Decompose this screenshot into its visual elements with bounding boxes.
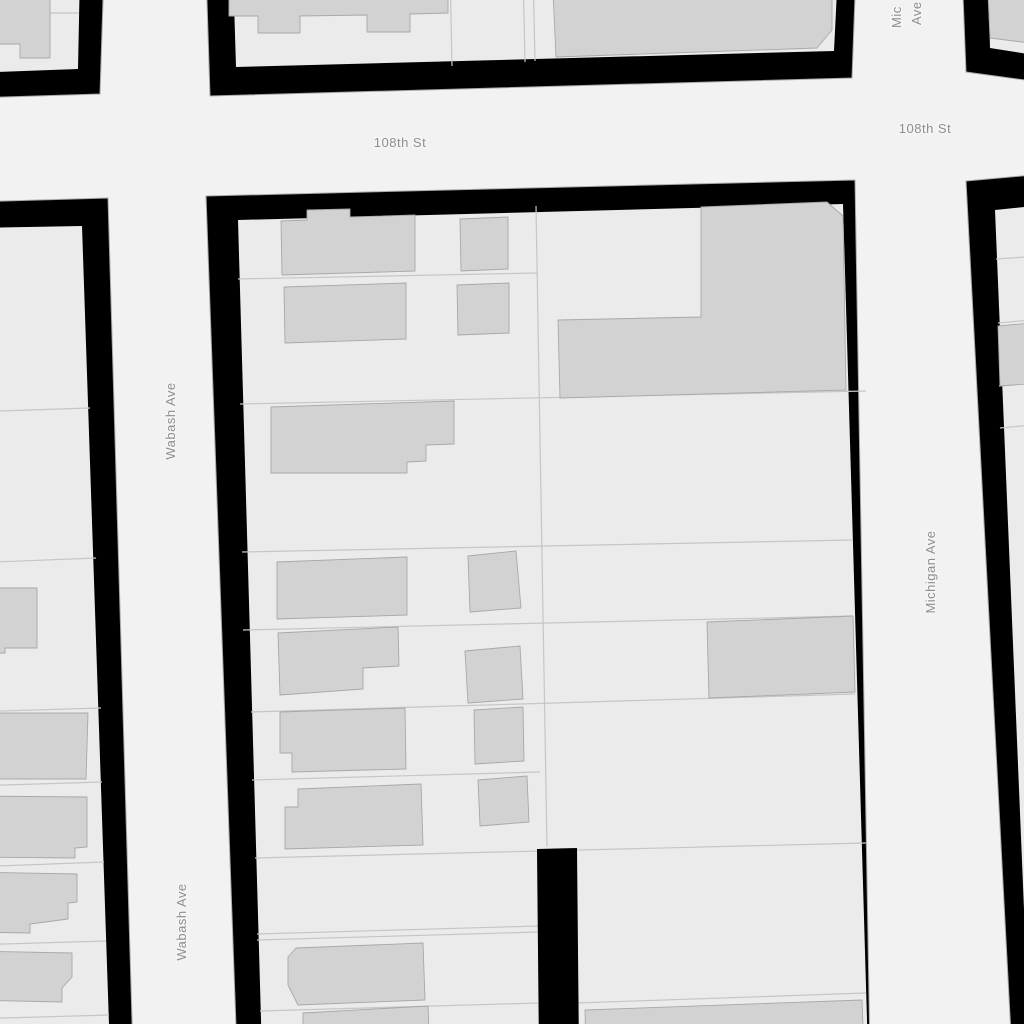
block-center-building-2 <box>284 283 406 343</box>
street-label-wabash-ave-north: Wabash Ave <box>163 382 178 459</box>
street-label-michigan-ave-top-line1: Mic <box>889 6 904 28</box>
block-center-building-8 <box>465 646 523 703</box>
block-west-building-2 <box>0 796 87 858</box>
block-center-building-6 <box>468 551 521 612</box>
block-center-building-3 <box>457 283 509 335</box>
block-center-building-13 <box>288 943 425 1005</box>
block-center-building-12 <box>478 776 529 826</box>
street-label-wabash-ave-south: Wabash Ave <box>174 883 189 960</box>
block-center-building-9 <box>280 708 406 772</box>
map-viewport: 108th St108th StWabash AveWabash AveMich… <box>0 0 1024 1024</box>
block-east-building-0 <box>998 321 1024 386</box>
street-label-michigan-ave: Michigan Ave <box>923 530 938 613</box>
block-center-building-11 <box>285 784 423 849</box>
map-svg[interactable]: 108th St108th StWabash AveWabash AveMich… <box>0 0 1024 1024</box>
block-west-building-0 <box>0 588 37 653</box>
block-north-building-1 <box>552 0 832 57</box>
street-label-108th-st-east: 108th St <box>899 121 951 136</box>
block-center-building-10 <box>474 707 524 764</box>
block-center-building-5 <box>277 557 407 619</box>
alley-strip <box>537 848 579 1024</box>
block-center-building-1 <box>460 217 508 271</box>
block-center-building-16 <box>707 616 855 698</box>
street-label-michigan-ave-top-line2: Ave <box>909 1 924 25</box>
street-label-108th-st-west: 108th St <box>374 135 426 150</box>
block-west-building-1 <box>0 713 88 779</box>
block-west-building-4 <box>0 951 72 1002</box>
